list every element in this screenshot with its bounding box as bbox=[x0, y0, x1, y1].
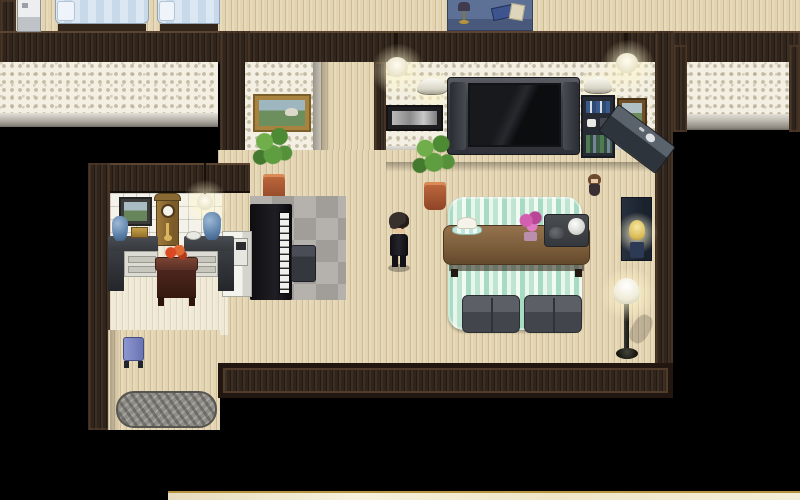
clock-face bbox=[161, 204, 175, 218]
piano-chair bbox=[291, 245, 316, 282]
pendant-lamp bbox=[616, 53, 638, 73]
gray-shag-rug bbox=[116, 391, 217, 428]
piano-wall-shadow bbox=[313, 62, 321, 150]
player-leg bbox=[392, 255, 398, 267]
doll bbox=[585, 174, 604, 198]
blue-bench bbox=[123, 337, 144, 369]
plant-pot bbox=[424, 182, 446, 210]
floor-cushion bbox=[462, 295, 520, 333]
widescreen-tv bbox=[447, 77, 580, 155]
potted-plant bbox=[250, 126, 296, 204]
right-room-tiled-wall bbox=[687, 62, 789, 116]
pink-flowers bbox=[516, 210, 545, 242]
panoramic-picture bbox=[386, 105, 443, 131]
hanging-lamp bbox=[197, 194, 213, 210]
hanging-lamp-cord bbox=[204, 163, 206, 197]
plant-leaves bbox=[412, 132, 456, 186]
blue-desk bbox=[447, 0, 533, 31]
potted-plant bbox=[410, 132, 456, 212]
tv-left-frame bbox=[374, 62, 386, 154]
dresser-with-lamp bbox=[621, 197, 652, 261]
pendant-lamp bbox=[386, 57, 408, 77]
right-room-frame-right bbox=[789, 45, 800, 132]
wall-sconce bbox=[584, 77, 612, 93]
tv-right-wall bbox=[655, 31, 673, 398]
blue-vase bbox=[112, 216, 128, 241]
study-wall-band bbox=[88, 163, 250, 193]
red-flowers bbox=[163, 245, 189, 262]
refrigerator bbox=[17, 0, 41, 32]
player-body bbox=[390, 234, 408, 256]
papers bbox=[509, 3, 526, 21]
cup bbox=[587, 119, 596, 127]
tea-tray bbox=[544, 214, 589, 247]
corner-desk-left bbox=[108, 236, 158, 291]
flower-table bbox=[155, 257, 198, 307]
game-viewport[interactable] bbox=[0, 0, 800, 500]
bottom-room-marble-floor bbox=[168, 491, 800, 500]
teapot bbox=[549, 227, 564, 239]
cake-plate bbox=[452, 217, 482, 235]
blue-vase bbox=[203, 212, 221, 240]
plate bbox=[186, 231, 201, 240]
kettle bbox=[568, 218, 585, 235]
desk-lamp bbox=[456, 2, 472, 26]
bottom-wall-band bbox=[218, 363, 673, 398]
wall-sconce bbox=[417, 78, 447, 94]
dresser-lamp bbox=[629, 220, 645, 240]
study-left-wall bbox=[88, 163, 110, 430]
gold-box bbox=[131, 227, 148, 238]
floor-cushion bbox=[524, 295, 582, 333]
player-leg bbox=[400, 255, 406, 267]
plant-leaves bbox=[252, 126, 294, 178]
books bbox=[586, 101, 610, 113]
bed bbox=[157, 0, 220, 31]
bed-pillow bbox=[57, 1, 75, 21]
hall-floor-shadow bbox=[321, 62, 331, 154]
tv-speaker-right bbox=[563, 82, 579, 150]
left-tiled-wall bbox=[0, 62, 218, 115]
faucet bbox=[638, 126, 645, 132]
sink-basin bbox=[644, 132, 657, 144]
bed bbox=[55, 0, 149, 31]
floor-lamp-shade bbox=[613, 278, 640, 304]
floor-lamp bbox=[604, 272, 656, 362]
piano-keys bbox=[279, 212, 290, 294]
right-room-frame-left bbox=[673, 45, 687, 132]
left-wall-ledge bbox=[0, 113, 218, 127]
tv-screen bbox=[468, 83, 561, 147]
pendant-rod bbox=[394, 33, 398, 59]
upright-piano bbox=[250, 204, 292, 300]
bed-pillow bbox=[159, 1, 175, 21]
right-room-ledge bbox=[687, 114, 789, 130]
pendant-rod bbox=[624, 33, 628, 55]
player-character[interactable] bbox=[385, 210, 413, 272]
